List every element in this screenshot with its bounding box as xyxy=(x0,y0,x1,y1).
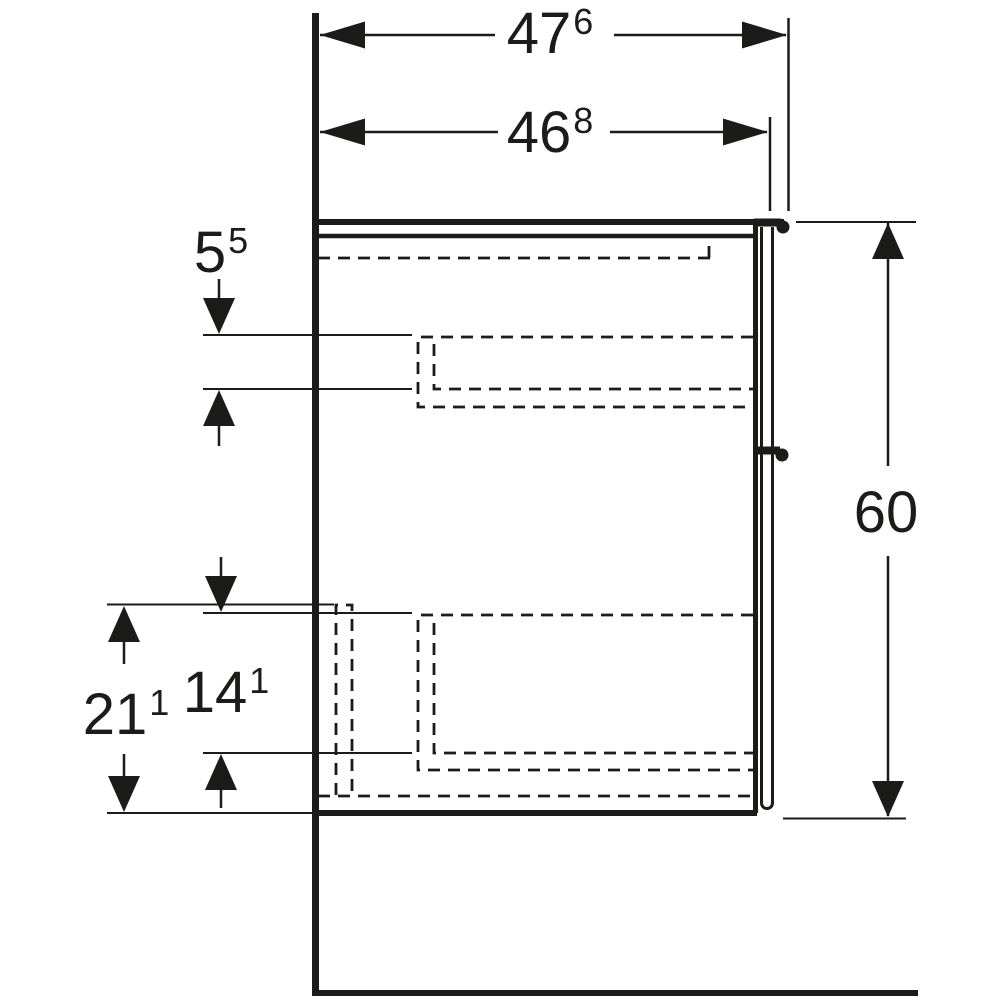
dimension-label: 141 xyxy=(183,660,270,725)
arrow-down-icon xyxy=(203,298,235,334)
arrow-down-icon xyxy=(205,576,237,612)
hidden-edges xyxy=(318,244,753,796)
dimension-height: 60 xyxy=(783,222,918,819)
arrow-left-icon xyxy=(320,119,365,146)
dimension-label: 60 xyxy=(854,480,919,545)
lower-drawer-outline xyxy=(418,615,753,770)
arrow-up-icon xyxy=(108,606,140,642)
vanity-cabinet-side-view-drawing: 476 468 55 211 xyxy=(0,0,1000,1000)
drawer-front-panel xyxy=(762,227,773,809)
siphon-cutout-outline xyxy=(336,605,352,795)
dimension-label: 468 xyxy=(507,100,594,165)
lower-drawer-inner-outline xyxy=(434,623,753,753)
arrow-up-icon xyxy=(203,390,235,426)
dimension-label: 211 xyxy=(83,682,170,747)
arrow-right-icon xyxy=(723,119,768,146)
upper-drawer-outline xyxy=(418,337,753,407)
arrow-down-icon xyxy=(108,776,140,812)
dimension-front-depth: 468 xyxy=(320,100,770,211)
arrow-right-icon xyxy=(742,22,787,49)
arrow-down-icon xyxy=(872,781,904,817)
lower-drawer-handle xyxy=(753,447,789,462)
technical-drawing-canvas: 476 468 55 211 xyxy=(0,0,1000,1000)
dimension-upper-inset: 55 xyxy=(194,220,412,446)
reference-lines xyxy=(312,13,918,996)
dimension-lower-inner: 141 xyxy=(183,557,412,808)
cabinet-body xyxy=(312,219,790,814)
arrow-up-icon xyxy=(205,754,237,790)
upper-drawer-inner-outline xyxy=(434,344,753,389)
dimension-label: 476 xyxy=(507,1,594,66)
arrow-left-icon xyxy=(320,22,365,49)
arrow-up-icon xyxy=(872,223,904,259)
dimension-label: 55 xyxy=(194,220,248,285)
